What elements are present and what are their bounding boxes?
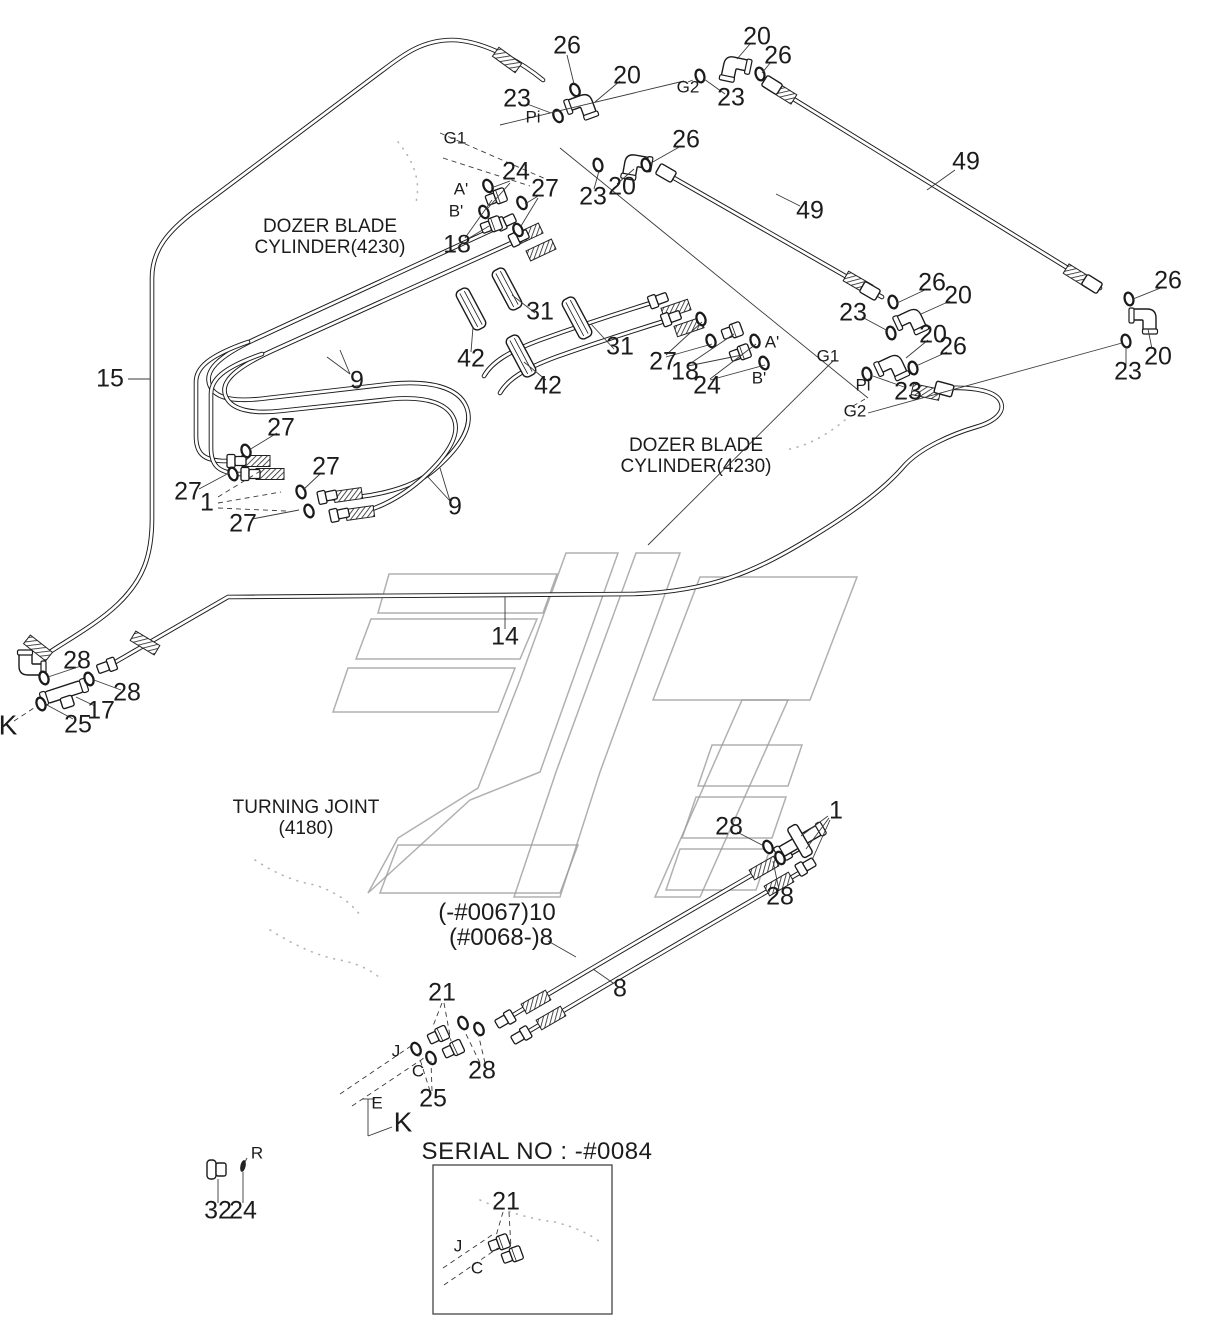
part-callout-21-74: 21 [492, 1188, 520, 1216]
ref-label-g2-6: G2 [677, 79, 700, 98]
part-callout-28-58: 28 [715, 813, 743, 841]
part-callout-15-20: 15 [96, 365, 124, 393]
part-callout-31-21: 31 [526, 298, 554, 326]
diagram-labels: 262023Pi2026G2232620234949G1A'B'242718DO… [0, 0, 1209, 1338]
part-callout-1-47: 1 [200, 489, 214, 517]
part-callout-28-64: 28 [468, 1057, 496, 1085]
part-callout-28-59: 28 [766, 883, 794, 911]
part-callout-9-25: 9 [350, 367, 364, 395]
part-callout-27-48: 27 [229, 510, 257, 538]
part-callout-24-29: 24 [693, 372, 721, 400]
part-callout-32-71: 32 [204, 1197, 232, 1225]
ref-label-b-31: B' [752, 370, 767, 389]
part-callout-24-72: 24 [229, 1197, 257, 1225]
part-callout-23-7: 23 [717, 84, 745, 112]
part-callout-24-16: 24 [502, 158, 530, 186]
part-callout-28-51: 28 [113, 679, 141, 707]
part-callout-26-5: 26 [764, 42, 792, 70]
part-callout-9-26: 9 [448, 493, 462, 521]
part-callout-27-46: 27 [174, 478, 202, 506]
part-callout-28-50: 28 [63, 647, 91, 675]
part-callout-25-53: 25 [64, 711, 92, 739]
serial-no-heading: SERIAL NO : -#0084 [422, 1139, 653, 1165]
ref-label-j-66: J [392, 1043, 401, 1062]
note-dozer-blade-cylinder-2: DOZER BLADE CYLINDER(4230) [621, 436, 772, 478]
part-callout-26-33: 26 [918, 269, 946, 297]
part-callout-8-62: 8 [613, 975, 627, 1003]
part-callout-23-40: 23 [894, 378, 922, 406]
ref-label-pi-3: Pi [525, 109, 540, 128]
part-callout-k-69: K [394, 1108, 413, 1139]
part-callout-42-22: 42 [457, 345, 485, 373]
ref-label-e-68: E [371, 1095, 382, 1114]
part-callout-23-10: 23 [579, 183, 607, 211]
ref-label-b-15: B' [449, 203, 464, 222]
ref-label-a-30: A' [765, 334, 780, 353]
ref-label-j-75: J [454, 1238, 463, 1257]
hose-variant-early: (-#0067)10 [438, 900, 555, 926]
part-callout-31-23: 31 [606, 333, 634, 361]
part-callout-26-8: 26 [672, 126, 700, 154]
part-callout-1-57: 1 [829, 797, 843, 825]
ref-label-g1-13: G1 [444, 130, 467, 149]
part-callout-27-17: 27 [531, 175, 559, 203]
hose-variant-late: (#0068-)8 [449, 925, 553, 951]
part-callout-49-12: 49 [796, 197, 824, 225]
note-dozer-blade-cylinder-1: DOZER BLADE CYLINDER(4230) [255, 217, 406, 259]
ref-label-a-14: A' [454, 181, 469, 200]
part-callout-21-63: 21 [428, 979, 456, 1007]
part-callout-23-44: 23 [1114, 358, 1142, 386]
ref-label-pi-39: Pi [855, 377, 870, 396]
part-callout-26-37: 26 [939, 333, 967, 361]
part-callout-20-9: 20 [608, 173, 636, 201]
part-callout-20-1: 20 [613, 62, 641, 90]
part-callout-26-42: 26 [1154, 267, 1182, 295]
ref-label-g1-38: G1 [817, 348, 840, 367]
parts-diagram-page: 262023Pi2026G2232620234949G1A'B'242718DO… [0, 0, 1209, 1338]
part-callout-20-43: 20 [1144, 343, 1172, 371]
part-callout-18-18: 18 [443, 231, 471, 259]
part-callout-20-34: 20 [944, 282, 972, 310]
note-turning-joint: TURNING JOINT (4180) [233, 798, 380, 840]
part-callout-25-65: 25 [419, 1085, 447, 1113]
part-callout-42-24: 42 [534, 372, 562, 400]
part-callout-27-49: 27 [312, 453, 340, 481]
ref-label-g2-41: G2 [844, 403, 867, 422]
part-callout-49-11: 49 [952, 148, 980, 176]
part-callout-27-45: 27 [267, 414, 295, 442]
part-callout-k-54: K [0, 711, 17, 742]
part-callout-26-0: 26 [553, 32, 581, 60]
part-callout-14-55: 14 [491, 623, 519, 651]
ref-label-r-70: R [251, 1145, 263, 1164]
ref-label-c-76: C [471, 1260, 483, 1279]
ref-label-c-67: C [412, 1063, 424, 1082]
part-callout-23-35: 23 [839, 299, 867, 327]
